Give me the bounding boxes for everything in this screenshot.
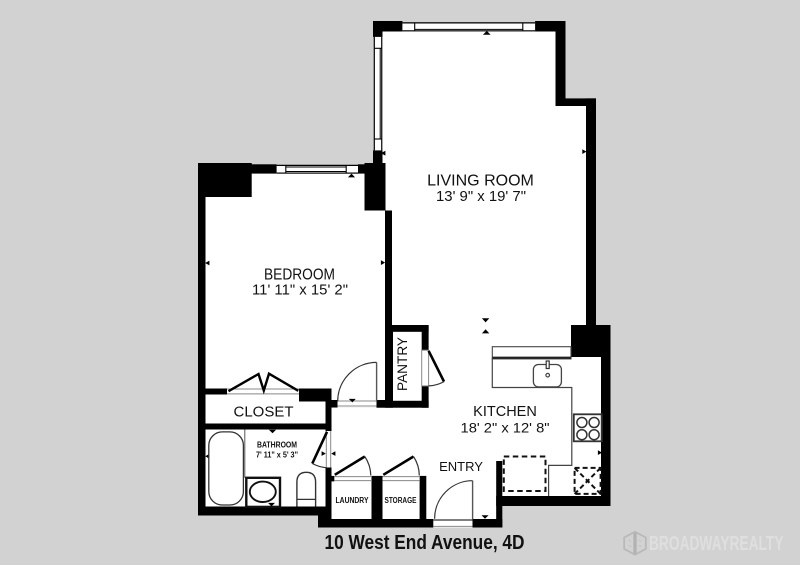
svg-text:LIVING ROOM: LIVING ROOM xyxy=(427,173,534,190)
svg-text:BEDROOM: BEDROOM xyxy=(264,267,335,284)
svg-text:10 West End Avenue, 4D: 10 West End Avenue, 4D xyxy=(325,531,525,554)
svg-text:KITCHEN: KITCHEN xyxy=(473,404,537,420)
svg-text:LAUNDRY: LAUNDRY xyxy=(336,496,370,505)
svg-text:CLOSET: CLOSET xyxy=(233,404,293,421)
svg-text:7' 11" x 5' 3": 7' 11" x 5' 3" xyxy=(256,451,298,460)
svg-text:ENTRY: ENTRY xyxy=(439,459,483,474)
svg-text:BROADWAYREALTY: BROADWAYREALTY xyxy=(649,532,784,555)
svg-text:STORAGE: STORAGE xyxy=(385,496,418,505)
svg-text:BATHROOM: BATHROOM xyxy=(257,440,297,450)
svg-text:13' 9" x 19' 7": 13' 9" x 19' 7" xyxy=(436,189,526,205)
svg-text:18' 2" x 12' 8": 18' 2" x 12' 8" xyxy=(461,420,550,436)
svg-text:11' 11" x 15' 2": 11' 11" x 15' 2" xyxy=(252,283,348,299)
svg-text:PANTRY: PANTRY xyxy=(395,337,410,391)
